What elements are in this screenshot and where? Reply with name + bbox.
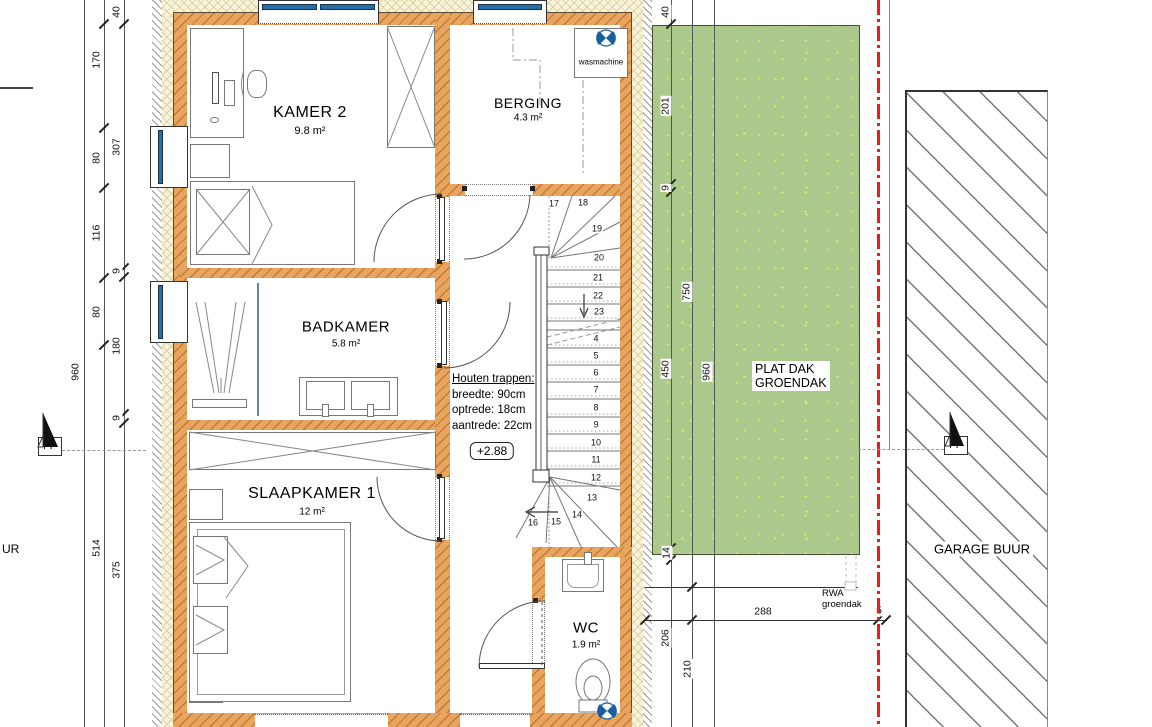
door-leaf-slaapkamer1 — [439, 477, 445, 539]
wall-segment — [435, 366, 450, 477]
door-jamb — [533, 598, 538, 603]
door-leaf-kamer2 — [439, 197, 445, 261]
step-number: 15 — [550, 518, 562, 527]
step-number: 6 — [592, 369, 599, 378]
window-glazing — [262, 4, 317, 10]
step-number: 12 — [590, 474, 602, 483]
window-kamer2-left — [150, 126, 188, 188]
dim-label: 960 — [701, 362, 712, 382]
wall-kamer2-badkamer — [180, 268, 435, 278]
rwa-line1: RWA — [822, 588, 862, 599]
neighbour-label: UR — [2, 542, 19, 556]
dim-label: 180 — [111, 336, 122, 356]
dim-label: 206 — [660, 628, 671, 648]
pillow — [193, 536, 228, 584]
wc-tap — [584, 552, 592, 565]
window-slaapkamer-bottom — [255, 714, 388, 727]
dim-label: 9 — [111, 414, 122, 422]
dim-label: 80 — [91, 305, 102, 319]
dim-label: 14 — [661, 546, 672, 560]
door-opening-wc — [532, 601, 545, 667]
stair-note-title: Houten trappen: — [452, 372, 534, 388]
sight-line-right — [858, 449, 944, 450]
keyboard — [224, 80, 235, 106]
nightstand — [189, 489, 223, 520]
wall-segment — [435, 262, 450, 302]
wall-wc-left — [532, 557, 545, 601]
dim-line-left-inner — [124, 0, 125, 727]
window-glazing — [320, 4, 375, 10]
fp-marker-left: FP — [38, 437, 62, 456]
dim-label: 116 — [91, 224, 102, 243]
step-number: 18 — [577, 199, 589, 208]
wall-badkamer-slaapkamer — [180, 420, 435, 430]
room-label-kamer2: KAMER 2 — [273, 104, 347, 122]
shower-tray — [192, 399, 247, 408]
wardrobe-kamer2 — [387, 26, 435, 148]
door-opening-stair — [465, 184, 533, 196]
dim-label: 40 — [111, 5, 122, 19]
dim-label: 514 — [91, 538, 102, 558]
dim-label: 9 — [111, 267, 122, 275]
boundary-gray-line — [889, 0, 890, 450]
window-glazing — [158, 285, 163, 339]
window-hall-bottom — [460, 714, 530, 727]
property-boundary-red-line — [877, 0, 880, 727]
step-number: 20 — [593, 254, 605, 263]
dim-line-left-mid — [104, 0, 105, 727]
room-area-badkamer: 5.8 m² — [332, 339, 360, 350]
wall-bottom — [173, 713, 632, 727]
dim-label: 201 — [660, 96, 671, 116]
room-area-slaapkamer1: 12 m² — [299, 507, 325, 518]
room-label-slaapkamer1: SLAAPKAMER 1 — [248, 485, 376, 503]
pillow — [193, 606, 228, 654]
room-label-berging: BERGING — [494, 95, 562, 111]
rwa-shaft — [845, 556, 856, 590]
wall-hall-top — [533, 184, 620, 196]
step-number: 14 — [571, 511, 583, 520]
step-number: 8 — [592, 404, 599, 413]
dim-label: 960 — [70, 362, 81, 382]
step-number: 17 — [548, 200, 560, 209]
step-number: 9 — [592, 421, 599, 430]
dim-label: 750 — [681, 282, 692, 302]
step-number: 23 — [593, 308, 605, 317]
dim-label: 9 — [660, 184, 671, 192]
door-jamb — [530, 186, 535, 191]
green-roof-label: PLAT DAK GROENDAK — [752, 361, 830, 391]
pillow — [196, 189, 250, 255]
window-glazing — [158, 130, 163, 184]
wall-wc-top — [532, 547, 632, 557]
desk-chair — [247, 70, 267, 98]
faucet — [322, 404, 329, 417]
wall-berging-left — [435, 13, 450, 197]
shower-partition — [257, 283, 259, 416]
step-number: 10 — [590, 439, 602, 448]
step-number: 13 — [586, 494, 598, 503]
dim-label: 170 — [91, 50, 102, 70]
faucet — [367, 404, 374, 417]
dim-label: 80 — [91, 151, 102, 165]
step-number: 4 — [592, 335, 599, 344]
wall-segment — [435, 540, 450, 713]
garage-area — [905, 90, 1048, 727]
dim-label: 288 — [753, 606, 773, 617]
dim-label: 210 — [682, 659, 693, 679]
rwa-label: RWA groendak — [822, 588, 862, 610]
green-roof-label-line2: GROENDAK — [755, 376, 827, 390]
washing-machine-label: wasmachine — [579, 58, 623, 67]
step-number: 16 — [527, 519, 539, 528]
dresser — [190, 144, 230, 178]
room-area-wc: 1.9 m² — [572, 640, 600, 651]
step-number: 5 — [592, 352, 599, 361]
neighbour-wall-line — [0, 87, 33, 89]
wall-wc-left — [532, 667, 545, 713]
dim-line-bottom — [645, 620, 887, 621]
sight-line-left — [57, 450, 146, 451]
dim-line-left-outer — [84, 0, 85, 727]
step-number: 22 — [592, 292, 604, 301]
wc-basin-bowl — [567, 564, 599, 588]
stair-note-l3: aantrede: 22cm — [452, 419, 534, 435]
step-number: 11 — [590, 456, 601, 465]
dim-label: 450 — [660, 359, 671, 379]
wardrobe-slaapkamer — [189, 432, 436, 470]
stair-note-l2: optrede: 18cm — [452, 403, 534, 419]
dim-label: 307 — [111, 137, 122, 157]
door-leaf-badkamer — [441, 301, 447, 365]
fp-marker-right: FP — [944, 436, 968, 455]
dim-label: 40 — [660, 5, 671, 19]
step-number: 19 — [591, 225, 603, 234]
room-area-kamer2: 9.8 m² — [294, 125, 325, 137]
dim-label: 375 — [111, 560, 122, 580]
step-number: 21 — [592, 274, 604, 283]
existing-wall-band-left — [152, 0, 162, 727]
window-badkamer-left — [150, 281, 188, 343]
garage-label: GARAGE BUUR — [931, 542, 1033, 557]
window-glazing — [478, 4, 542, 10]
mouse — [210, 117, 219, 123]
level-marker: +2.88 — [470, 442, 514, 460]
step-number: 7 — [592, 386, 599, 395]
rwa-line2: groendak — [822, 599, 862, 610]
door-leaf-wc — [479, 663, 545, 669]
door-jamb — [462, 186, 467, 191]
room-area-berging: 4.3 m² — [514, 113, 542, 124]
stair-note: Houten trappen: breedte: 90cm optrede: 1… — [452, 372, 534, 434]
dim-line-right-c — [714, 0, 715, 727]
green-roof-label-line1: PLAT DAK — [755, 362, 827, 376]
stair-note-l1: breedte: 90cm — [452, 388, 534, 404]
room-label-wc: WC — [573, 620, 599, 637]
monitor — [212, 72, 219, 104]
floorplan-canvas: UR 960 170 80 116 80 514 40 307 9 180 9 … — [0, 0, 1152, 727]
washing-machine — [574, 28, 628, 78]
room-label-badkamer: BADKAMER — [302, 319, 390, 336]
